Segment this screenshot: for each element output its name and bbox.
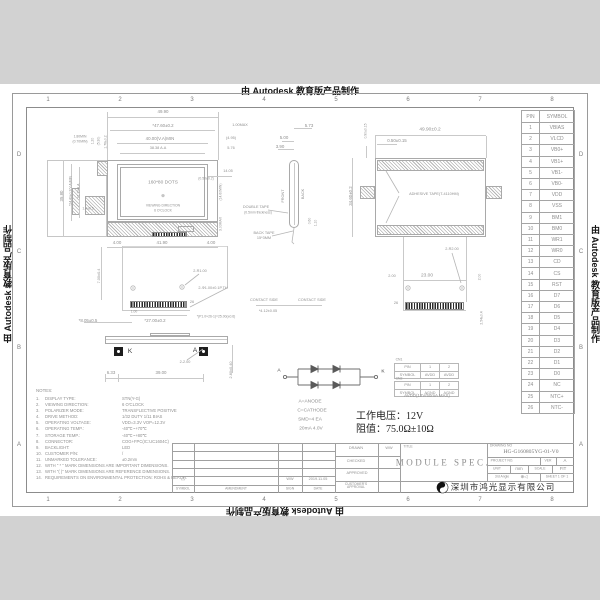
dim-top-left-1: 1.20: [91, 138, 94, 145]
dim-back-holes: 2-R2.00: [445, 248, 459, 252]
zone-letter: C: [579, 249, 583, 255]
pin-symbol: CS: [540, 268, 575, 279]
pin-number: 2: [522, 134, 540, 145]
zone-letter: D: [579, 152, 583, 158]
led-note-2: C=CATHODE: [297, 410, 326, 415]
avdd-note: AVDD(12V/50mA MAX): [404, 394, 450, 398]
note-number: 5.: [36, 420, 40, 425]
pin-number: 11: [522, 234, 540, 245]
dim-back-e2: 2.00: [478, 274, 481, 281]
pin-row: 13 CD: [522, 257, 575, 268]
fpc-slot-label: 2-R1.00: [193, 270, 207, 274]
fpc-hole-label: 2-Φ1.00±0.1P.TH: [198, 287, 227, 291]
zone-number: 6: [406, 97, 409, 103]
drawing-title: MODULE SPEC.: [396, 459, 491, 468]
ext-line: [486, 136, 487, 158]
dim-back-height: 34.60±0.2: [349, 186, 353, 206]
pin-symbol: CD: [540, 257, 575, 268]
fpc-contacts-front: [130, 301, 187, 308]
zone-letter: A: [17, 442, 21, 448]
pin-symbol: NTC+: [540, 391, 575, 402]
cn-cell: PIN: [395, 364, 421, 372]
note-value: TRANSFLECTIVE POSITIVE: [122, 408, 177, 413]
dim-side-b: 5.00: [280, 136, 289, 140]
note-value: /: [122, 451, 123, 456]
note-label: OPERATING TEMP.:: [45, 426, 84, 431]
pin-symbol: VB1-: [540, 167, 575, 178]
dim-top-left-3: 1.76±0.2: [104, 135, 107, 148]
dim-right-edge: 5.76: [227, 147, 234, 151]
titleblock-line: [172, 468, 335, 469]
note-value: COG+FPC(IC:UC1604C): [122, 439, 169, 444]
cn1-table: PIN12 SYMBOLAVDDAVDD: [394, 363, 459, 379]
dim-lens-1: 1.80MIN: [74, 135, 87, 138]
pin-symbol: VLCD: [540, 134, 575, 145]
dim-va-width: 40.00(V.A)MIN: [146, 137, 175, 141]
led-note-4: 20mA 4.0V: [299, 428, 322, 433]
note-value: 6 O'CLOCK: [122, 402, 144, 407]
note-number: 4.: [36, 414, 40, 419]
pin-symbol: NC: [540, 380, 575, 391]
note-number: 3.: [36, 408, 40, 413]
note-number: 11.: [36, 457, 42, 462]
dim-line: [120, 153, 205, 154]
dim-aa-height: 21.10 A.A: [77, 184, 80, 199]
dim-bottom-offset: 6.33: [107, 371, 116, 375]
fpc-flap-top: [122, 246, 227, 247]
dim-bottom-left: 4.00: [113, 241, 122, 245]
unit-value: mm: [515, 467, 522, 471]
note-number: 2.: [36, 402, 40, 407]
zone-number: 7: [478, 497, 481, 503]
pin-number: 17: [522, 302, 540, 313]
dim-va-height: *24.40±0.2(V.A)MIN: [69, 176, 72, 206]
pin-symbol: D2: [540, 346, 575, 357]
checked-label: CHECKED: [347, 460, 366, 464]
dim-line: [366, 146, 367, 158]
zone-letter: C: [17, 249, 21, 255]
viewing-direction-2: 6 O'CLOCK: [154, 209, 172, 212]
bottom-view-line: [106, 339, 227, 340]
dim-fpc-height: 7.00±0.4: [98, 269, 102, 284]
dim-line: [117, 143, 208, 144]
dim-line: [107, 247, 218, 248]
dim-back-span: 23.00: [421, 275, 433, 280]
dim-line: [107, 117, 218, 118]
ver-label: VER: [545, 459, 552, 462]
fpc-pin-count: 26: [190, 301, 194, 305]
dim-right-gap: 1.00MAX: [232, 124, 248, 128]
zone-number: 8: [550, 497, 553, 503]
back-flap-edge: [466, 237, 467, 302]
fpc-flap-edge: [122, 246, 123, 310]
pin-number: 13: [522, 257, 540, 268]
pin-row: 12 WR0: [522, 246, 575, 257]
rev-header-amendment: AMENDMENT: [225, 487, 247, 490]
pad-dot: [202, 350, 204, 352]
fpc-contacts-back: [405, 302, 464, 310]
titleblock-line: [335, 468, 400, 469]
rev-header-symbol: SYMBOL: [176, 487, 190, 490]
dim-fpc-pitch: *(P1.0×26-1)=25.00(±0.6): [197, 315, 236, 318]
zone-number: 1: [46, 497, 49, 503]
pin-row: 11 WR1: [522, 234, 575, 245]
titleblock-line: [540, 473, 541, 481]
cathode-pad: [114, 347, 123, 356]
zone-letters-right: DCBA: [574, 107, 588, 493]
note-label: BACKLIGHT:: [45, 445, 69, 450]
pin-symbol: D6: [540, 302, 575, 313]
dim-va-height-min: (14.60MIN): [219, 184, 222, 201]
dim-fpc-offset: *8.05±0.5: [79, 319, 98, 323]
pin-symbol: VB0-: [540, 178, 575, 189]
dim-side-e: 1.10: [314, 220, 317, 227]
bottom-view-profile: [105, 336, 228, 344]
fpc-tab-left: [360, 186, 375, 199]
note-label: DRIVE METHOD:: [45, 414, 78, 419]
note-value: STN(Y-G): [122, 396, 140, 401]
adhesive-tape-label: ADHESIVE TAPE(T-4110HM): [409, 193, 459, 197]
dim-bottom-mid: 41.90: [157, 241, 168, 245]
note-label: UNMARKED TOLERANCE:: [45, 457, 97, 462]
pin-symbol: D4: [540, 324, 575, 335]
dim-back-t2: 0.90±0.15: [364, 123, 367, 138]
cn-cell: AVDD: [421, 371, 440, 379]
dim-tick: [203, 374, 204, 382]
zone-number: 4: [262, 497, 265, 503]
projection-symbol-icon: ⊕◁: [520, 475, 527, 479]
pin-number: 24: [522, 380, 540, 391]
adhesive-strip-bottom: [377, 225, 484, 235]
cn-cell: 2: [440, 364, 459, 372]
pin-row: 1 VBIAS: [522, 123, 575, 134]
pin-row: 18 D5: [522, 313, 575, 324]
dim-fpc-first: 1.00: [131, 310, 138, 313]
titleblock-line: [172, 443, 574, 444]
pin-number: 26: [522, 402, 540, 413]
back-pin-count: 26: [394, 302, 398, 306]
anode-label: A: [193, 348, 197, 355]
ext-line: [375, 136, 376, 158]
dim-side-d: 0.60: [308, 218, 311, 225]
pin-row: 15 RST: [522, 279, 575, 290]
side-front-label: FRONT: [282, 189, 286, 202]
pin-symbol: NTC-: [540, 402, 575, 413]
zone-number: 2: [118, 97, 121, 103]
note-number: 10.: [36, 451, 42, 456]
zone-number: 7: [478, 97, 481, 103]
pin-row: 24 NC: [522, 380, 575, 391]
note-value: 1/32 DUTY 1/11 BIAS: [122, 414, 162, 419]
drawn-value: WW: [385, 447, 392, 451]
zone-number: 6: [406, 497, 409, 503]
pin-number: 21: [522, 346, 540, 357]
back-tape-size: 15*3MM: [257, 237, 271, 241]
note-value: LED: [122, 445, 130, 450]
drawing-no: HG-G160805YG-01-V0: [504, 450, 559, 456]
pin-number: 8: [522, 201, 540, 212]
dim-line: [130, 315, 187, 316]
pin-number: 16: [522, 290, 540, 301]
scale-value: FIT: [560, 467, 567, 471]
ver-value: A: [564, 459, 567, 463]
pin-row: 26 NTC-: [522, 402, 575, 413]
pin-row: 23 D0: [522, 369, 575, 380]
note-number: 1.: [36, 396, 40, 401]
rev-header-date: DATE: [314, 487, 323, 490]
bottom-view-bump: [150, 333, 190, 336]
scale-label: SCALE: [534, 467, 545, 470]
pin-number: 19: [522, 324, 540, 335]
dim-tick: [118, 374, 119, 382]
dim-top-left-2: (5.30): [97, 137, 100, 146]
back-tape-mark: [178, 226, 194, 232]
back-flap-edge: [403, 237, 404, 310]
rev-symbol: △: [181, 478, 185, 483]
pin-number: 10: [522, 223, 540, 234]
pin-row: 25 NTC+: [522, 391, 575, 402]
cn-cell: 2: [440, 382, 459, 390]
pin-row: 4 VB1+: [522, 156, 575, 167]
pin-number: 23: [522, 369, 540, 380]
note-value: -40℃~+80℃: [122, 433, 147, 438]
titleblock-line: [540, 457, 541, 465]
cn-cell: PIN: [395, 382, 421, 390]
dim-line: [377, 144, 397, 145]
ext-line: [218, 112, 219, 160]
note-label: POLARIZER MODE:: [45, 408, 84, 413]
pin-row: 8 VSS: [522, 201, 575, 212]
note-label: OPERATING VOLTAGE:: [45, 420, 91, 425]
cog-contact-strip: [152, 232, 187, 237]
pin-symbol: D3: [540, 335, 575, 346]
pin-symbol: VB0+: [540, 145, 575, 156]
title-label: TITLE: [403, 445, 412, 448]
note-label: CUSTOMER P/N:: [45, 451, 78, 456]
note-label: WITH "( )" MARK DIMENSIONS ARE REFERENCE…: [45, 469, 170, 474]
circuit-cathode-label: K: [381, 371, 384, 376]
fpc-flap-edge: [227, 246, 228, 288]
dim-right-height: 14.05: [223, 170, 233, 174]
pin-number: 1: [522, 123, 540, 134]
customer-approval-label: CUSTOMER'S APPROVAL: [337, 483, 375, 491]
pin-number: 5: [522, 167, 540, 178]
back-flap-edge: [403, 310, 466, 311]
dim-bezel-max: 3.00MAX: [219, 217, 222, 231]
dim-aa-width: 38.38 A.A: [150, 147, 166, 151]
pin-symbol: VSS: [540, 201, 575, 212]
dim-back-width: 49.90±0.2: [419, 129, 440, 134]
pin-row: 19 D4: [522, 324, 575, 335]
pin-row: 17 D6: [522, 302, 575, 313]
titleblock-line: [528, 465, 529, 473]
note-label: VIEWING DIRECTION:: [45, 402, 89, 407]
zone-numbers-top: 12345678: [12, 93, 588, 107]
titleblock-line: [556, 457, 557, 465]
dim-led-block: 1.4±0.5: [82, 207, 93, 210]
zone-letters-left: DCBA: [12, 107, 26, 493]
resistance-value: 阻值：75.0Ω±10Ω: [356, 425, 434, 435]
adhesive-strip-top: [377, 160, 484, 171]
dim-pad-span: 39.00: [156, 371, 167, 375]
dim-right-ref: (4.95): [226, 137, 236, 141]
pin-symbol: WR0: [540, 246, 575, 257]
zone-number: 5: [334, 497, 337, 503]
contact-side-label-2: CONTACT SIDE: [298, 299, 326, 303]
pin-number: 20: [522, 335, 540, 346]
contact-side-label-1: CONTACT SIDE: [250, 299, 278, 303]
zone-number: 2: [118, 497, 121, 503]
contact-side-line: [256, 305, 322, 306]
note-label: CONNECTOR:: [45, 439, 73, 444]
zone-number: 3: [190, 97, 193, 103]
cn-cell: 1: [421, 364, 440, 372]
fpc-tab-right: [486, 186, 502, 199]
side-view-midline: [294, 163, 295, 225]
note-number: 6.: [36, 426, 40, 431]
note-label: DISPLAY TYPE:: [45, 396, 76, 401]
zone-number: 4: [262, 97, 265, 103]
pin-row: 5 VB1-: [522, 167, 575, 178]
pin-symbol: VBIAS: [540, 123, 575, 134]
dim-contact-width: *4.12±0.05: [259, 310, 277, 314]
angle-label: 3rd Angle: [495, 475, 509, 478]
zone-letter: B: [17, 345, 21, 351]
pin-symbol: WR1: [540, 234, 575, 245]
rev-header-sign: SIGN: [286, 487, 294, 490]
pin-number: 6: [522, 178, 540, 189]
pin-number: 15: [522, 279, 540, 290]
note-number: 12.: [36, 463, 42, 468]
pin-row: 22 D1: [522, 357, 575, 368]
note-number: 14.: [36, 475, 42, 480]
watermark-right: 由 Autodesk 教育版产品制作: [589, 225, 600, 343]
note-number: 13.: [36, 469, 42, 474]
display-resolution: 160*80 DOTS: [148, 182, 178, 187]
viewing-direction-1: VIEWING DIRECTION: [146, 204, 180, 207]
pin-symbol: D0: [540, 369, 575, 380]
dim-lens-2: (0.70MIN): [72, 140, 87, 143]
pin-symbol: BM1: [540, 212, 575, 223]
pin-row: 21 D2: [522, 346, 575, 357]
pin-row: 16 D7: [522, 290, 575, 301]
led-note-1: A=ANODE: [298, 401, 321, 406]
note-value: VDD=3.3V VOP=12.3V: [122, 420, 165, 425]
pin-symbol: VB1+: [540, 156, 575, 167]
pin-row: 6 VB0-: [522, 178, 575, 189]
note-number: 9.: [36, 445, 40, 450]
center-mark: ⊕: [161, 194, 165, 198]
note-value: -40℃~+70℃: [122, 426, 147, 431]
zone-number: 5: [334, 97, 337, 103]
dim-line: [110, 130, 215, 131]
pin-row: 10 BM0: [522, 223, 575, 234]
pin-number: 22: [522, 357, 540, 368]
pin-symbol: D5: [540, 313, 575, 324]
pin-number: 7: [522, 190, 540, 201]
pin-header: PIN: [522, 111, 540, 123]
note-value: ±0.2mm: [122, 457, 137, 462]
dim-back-t1: 0.50±0.15: [387, 139, 407, 143]
dim-right-tol: (0.50±0.2): [198, 177, 213, 180]
dim-bottom-height: 2.80±0.40: [230, 362, 234, 379]
dim-side-a: 5.73: [305, 124, 314, 128]
pin-row: 20 D3: [522, 335, 575, 346]
dim-overall-width: 49.90: [158, 110, 169, 114]
dim-overall-height: 35.80: [60, 191, 64, 202]
zone-letter: D: [17, 152, 21, 158]
zone-number: 8: [550, 97, 553, 103]
cn-cell: 1: [421, 382, 440, 390]
approved-label: APPROVED: [346, 472, 367, 476]
dim-line: [375, 135, 486, 136]
double-tape-sublabel: (0.5mm thickness): [244, 211, 272, 214]
titleblock-line: [335, 456, 400, 457]
dim-pads: 2-2.00: [180, 361, 191, 365]
pin-symbol: D7: [540, 290, 575, 301]
pin-row: 7 VDD: [522, 190, 575, 201]
pin-number: 3: [522, 145, 540, 156]
drawing-sheet-page: 由 Autodesk 教育版产品制作 由 Autodesk 教育版产品制作 由 …: [0, 0, 600, 600]
pin-symbol: BM0: [540, 223, 575, 234]
pin-number: 9: [522, 212, 540, 223]
titleblock-line: [172, 451, 335, 452]
circuit-anode-label: A: [277, 370, 280, 375]
pin-row: 9 BM1: [522, 212, 575, 223]
cn-cell: AVDD: [440, 371, 459, 379]
led-note-3: SMD=4 EA: [298, 419, 322, 424]
note-label: WITH " * " MARK DIMENSIONS ARE IMPORTANT…: [45, 463, 169, 468]
pin-symbol: VDD: [540, 190, 575, 201]
dim-line: [282, 141, 294, 142]
dim-back-tail: 2.54±0.4: [480, 311, 483, 324]
notes-title: NOTES:: [36, 389, 52, 393]
dim-side-c: 3.90: [276, 145, 285, 149]
dim-outline-width: *47.60±0.2: [152, 124, 173, 128]
pin-number: 25: [522, 391, 540, 402]
project-no-label: PROJECT NO.: [491, 459, 514, 462]
rev-date: 2019.11.05: [309, 478, 328, 482]
pin-number: 4: [522, 156, 540, 167]
pin-row: 14 CS: [522, 268, 575, 279]
drawn-label: DRAWN: [349, 447, 363, 451]
dim-line: [105, 378, 203, 379]
zone-number: 1: [46, 97, 49, 103]
anode-pad: [199, 347, 208, 356]
rev-sign: WW: [286, 478, 293, 482]
pin-number: 18: [522, 313, 540, 324]
titleblock-line: [552, 465, 553, 473]
pin-symbol: D1: [540, 357, 575, 368]
zone-numbers-bottom: 12345678: [12, 493, 588, 507]
dim-fpc-width: *27.00±0.2: [144, 319, 165, 323]
working-voltage: 工作电压：12V: [356, 412, 423, 422]
note-number: 7.: [36, 433, 40, 438]
note-label: STORAGE TEMP.:: [45, 433, 80, 438]
dim-bottom-right: 4.00: [207, 241, 216, 245]
pin-number: 14: [522, 268, 540, 279]
zone-letter: B: [579, 345, 583, 351]
pin-row: 3 VB0+: [522, 145, 575, 156]
note-label: REQUIREMENTS ON ENVIRONMENTAL PROTECTION…: [45, 475, 187, 480]
sheet-label: SHEET 1 OF 1: [546, 475, 569, 478]
titleblock-line: [510, 465, 511, 473]
note-number: 8.: [36, 439, 40, 444]
cn1-title: CN1: [396, 358, 403, 361]
pin-symbol: RST: [540, 279, 575, 290]
unit-label: UNIT: [493, 467, 501, 470]
zone-letter: A: [579, 442, 583, 448]
